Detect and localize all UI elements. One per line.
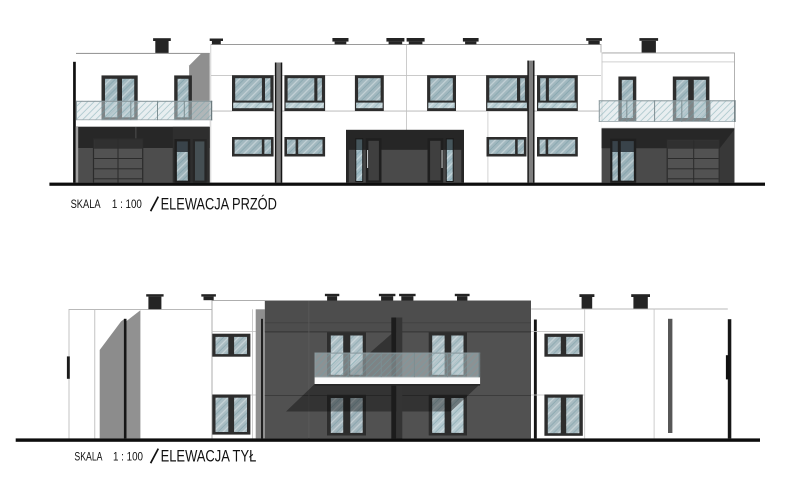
svg-text:SKALA: SKALA <box>71 198 101 211</box>
svg-text:1 : 100: 1 : 100 <box>113 450 143 463</box>
svg-text:SKALA: SKALA <box>74 450 102 463</box>
svg-text:1 : 100: 1 : 100 <box>112 198 142 211</box>
svg-text:ELEWACJA PRZÓD: ELEWACJA PRZÓD <box>161 194 277 213</box>
svg-text:ELEWACJA TYŁ: ELEWACJA TYŁ <box>161 446 257 465</box>
